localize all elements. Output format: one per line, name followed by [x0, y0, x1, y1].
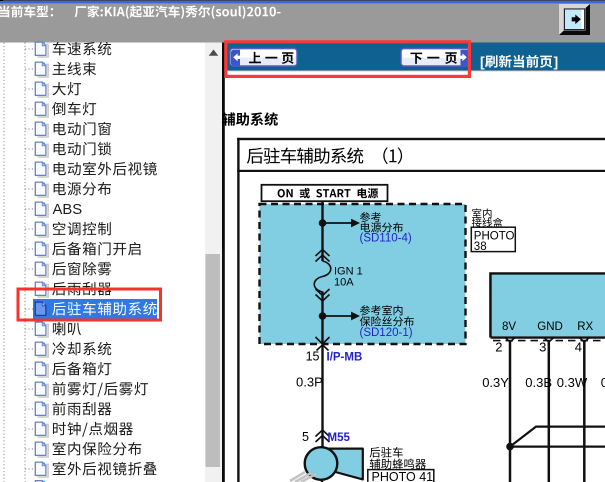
svg-text:GND: GND [537, 321, 563, 333]
svg-text:(SD110-4): (SD110-4) [360, 232, 412, 244]
svg-text:4: 4 [575, 340, 582, 355]
svg-text:2: 2 [495, 339, 502, 354]
svg-text:8V: 8V [502, 321, 516, 333]
svg-text:15: 15 [306, 350, 320, 364]
svg-text:0.3W: 0.3W [557, 375, 588, 390]
svg-text:38: 38 [474, 241, 487, 253]
svg-text:PHOTO 41: PHOTO 41 [372, 470, 434, 482]
svg-text:M55: M55 [328, 432, 351, 444]
svg-text:]: ] [554, 54, 559, 70]
svg-text:5: 5 [302, 430, 309, 444]
svg-text:0.3P: 0.3P [296, 375, 323, 390]
svg-text:[: [ [480, 54, 485, 70]
svg-text:0.3Y: 0.3Y [482, 375, 509, 390]
svg-text:(SD120-1): (SD120-1) [360, 327, 413, 339]
svg-text:I/P-MB: I/P-MB [327, 352, 363, 364]
svg-text:3: 3 [539, 339, 546, 354]
svg-text:0.: 0. [601, 375, 605, 390]
svg-text:0.3B: 0.3B [525, 375, 552, 390]
svg-text:ABS: ABS [53, 202, 83, 218]
svg-text:RX: RX [577, 321, 593, 333]
svg-text:10A: 10A [334, 276, 354, 288]
